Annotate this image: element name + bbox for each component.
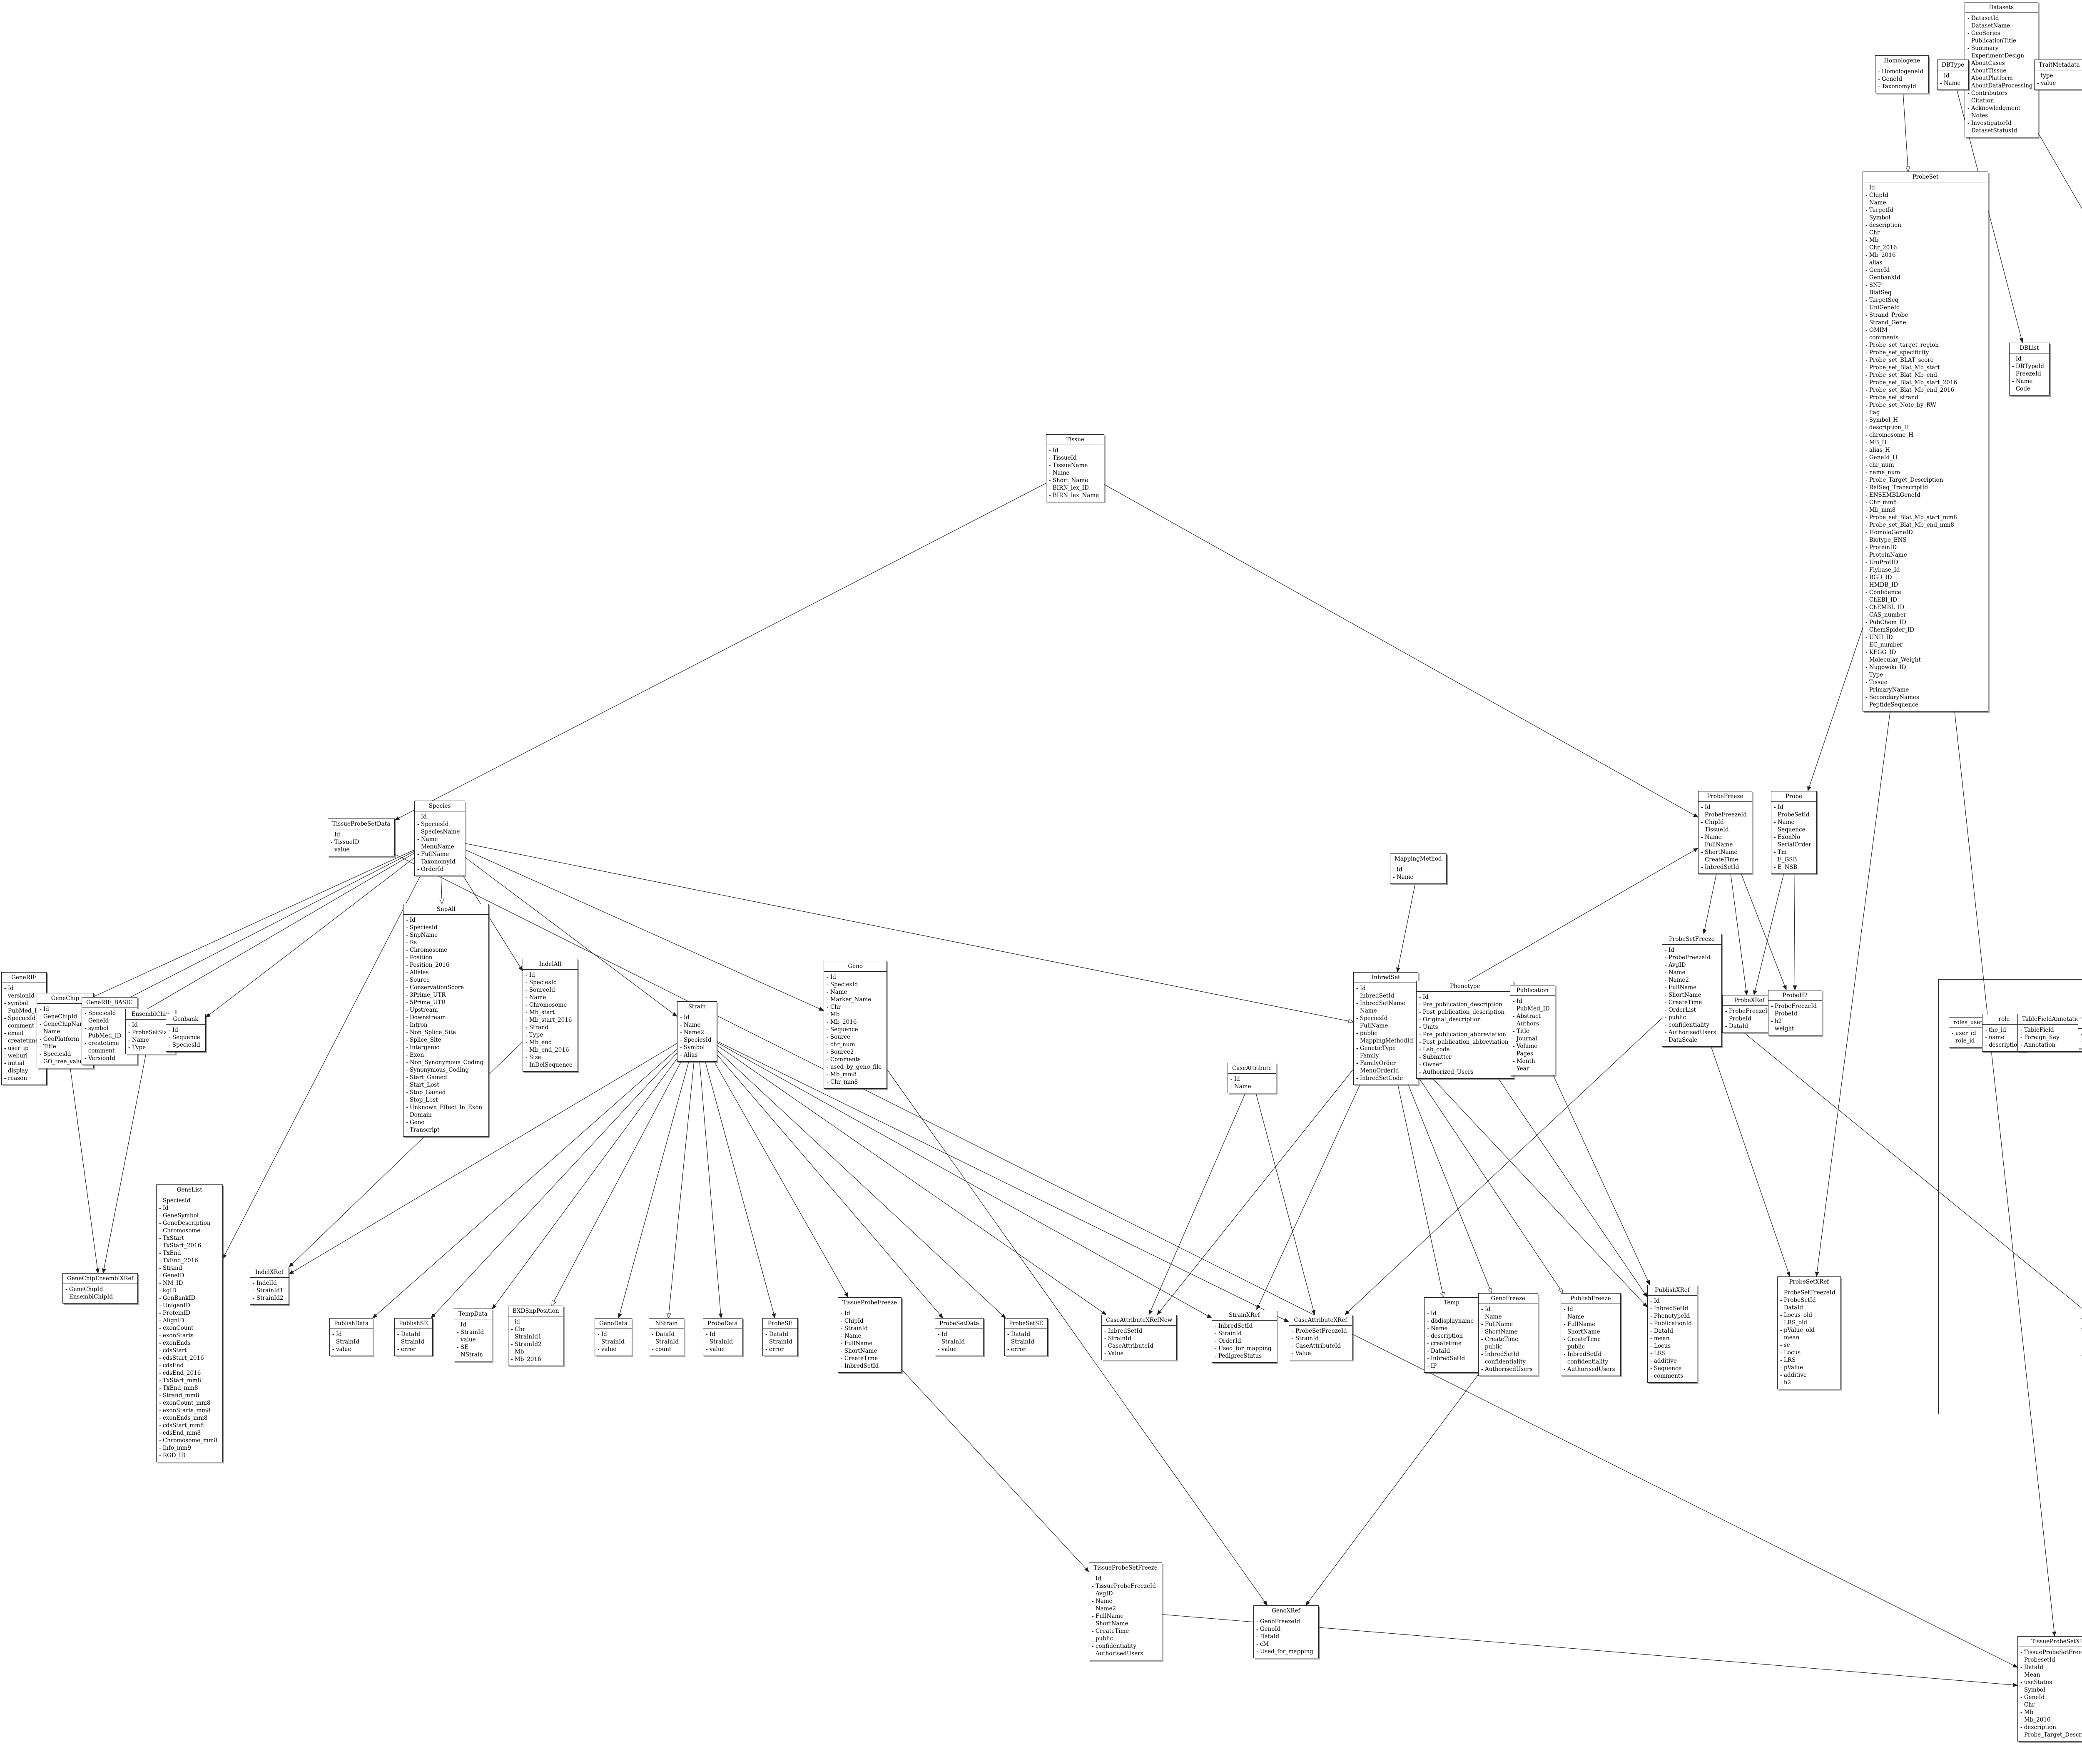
- field-row: - Summary: [1967, 45, 2033, 52]
- field-row: - GeneId: [1878, 75, 1923, 83]
- field-row: - Id: [1393, 866, 1441, 873]
- field-row: - Intergenic: [406, 1044, 483, 1051]
- table-title: CaseAttributeXRefNew: [1102, 1315, 1176, 1326]
- field-row: - Probe_set_Note_by_RW: [1865, 401, 1983, 409]
- table-GenoFreeze: GenoFreeze- Id- Name- FullName- ShortNam…: [1478, 1293, 1538, 1376]
- table-BXDSnpPosition: BXDSnpPosition- id- Chr- StrainId1- Stra…: [508, 1306, 563, 1366]
- table-Geno: Geno- Id- SpeciesId- Name- Marker_Name- …: [824, 961, 887, 1089]
- field-row: - Mb_2016: [2020, 1716, 2082, 1724]
- field-row: - GeneDescription: [159, 1219, 217, 1227]
- field-row: - pValue_old: [1780, 1326, 1835, 1334]
- table-title: CaseAttributeXRef: [1289, 1315, 1352, 1326]
- field-row: - Mb_end: [525, 1039, 573, 1046]
- field-row: - Source: [827, 1033, 882, 1041]
- relationship-edge-Strain-BXDSnpPosition: [552, 1062, 681, 1306]
- field-row: - public: [1665, 1014, 1716, 1021]
- field-row: - weight: [1771, 1025, 1817, 1033]
- field-row: - Start_Gained: [406, 1074, 483, 1081]
- field-row: - AboutDataProcessing: [1967, 82, 2033, 90]
- field-row: - chromosome_H: [1865, 431, 1983, 439]
- field-row: - E_GSB: [1774, 856, 1811, 863]
- field-row: - PeptideSequence: [1865, 701, 1983, 709]
- table-title: Datasets: [1965, 2, 2038, 13]
- field-row: - RGD_ID: [1865, 574, 1983, 581]
- field-list: - Id- TissueProbeFreezeId- AvgID- Name- …: [1089, 1573, 1162, 1660]
- field-row: - Name: [827, 988, 882, 996]
- field-row: - exonEnds: [159, 1339, 217, 1347]
- field-row: - Annotation: [2020, 1041, 2082, 1049]
- field-row: - RefSeq_TranscriptId: [1865, 484, 1983, 491]
- field-row: - VersionId: [85, 1055, 132, 1062]
- field-row: - createtime: [4, 1037, 41, 1045]
- table-title: ProbeSetFreeze: [1662, 934, 1721, 945]
- field-row: - GenbankId: [1865, 274, 1983, 281]
- field-row: - type: [2037, 72, 2079, 80]
- field-row: - createtime: [1427, 1340, 1474, 1347]
- field-row: - TxEnd: [159, 1249, 217, 1257]
- field-row: - DataId: [1256, 1633, 1313, 1640]
- field-row: - UnigenID: [159, 1302, 217, 1309]
- table-title: InbredSet: [1354, 973, 1418, 983]
- field-row: - versionId: [4, 992, 41, 1000]
- field-row: - LRS: [1780, 1356, 1835, 1364]
- field-row: - Name: [1230, 1083, 1271, 1090]
- field-row: - DBTypeId: [2012, 363, 2044, 370]
- relationship-edge-Tissue-TissueProbeSetData: [395, 483, 1046, 820]
- field-row: - symbol: [4, 1000, 41, 1007]
- field-row: - GeneId: [85, 1017, 132, 1025]
- field-row: - Exon: [406, 1051, 483, 1059]
- field-row: - Id: [1774, 804, 1811, 811]
- field-row: - Id: [1865, 184, 1983, 192]
- field-row: - Id: [1356, 985, 1413, 992]
- field-row: - SpeciesId: [680, 1036, 712, 1044]
- field-row: - Id: [169, 1026, 200, 1034]
- field-row: - Post_publication_description: [1419, 1008, 1509, 1016]
- field-row: - Id: [938, 1331, 978, 1338]
- field-list: - Id- StrainId- value: [935, 1329, 983, 1356]
- field-row: - Stop_Lost: [406, 1096, 483, 1104]
- relationship-edge-Strain-ProbeSE: [705, 1062, 775, 1318]
- field-row: - Alias: [680, 1051, 712, 1059]
- field-row: - public: [1564, 1343, 1615, 1351]
- field-row: - TaxonomyId: [1878, 83, 1923, 90]
- field-row: - Mb_end_2016: [525, 1046, 573, 1054]
- field-row: - ProbeSetId: [1774, 811, 1811, 819]
- field-row: - InDelSequence: [525, 1061, 573, 1069]
- field-row: - AboutTissue: [1967, 67, 2033, 75]
- field-row: - Nugowiki_ID: [1865, 664, 1983, 671]
- field-row: - Domain: [406, 1111, 483, 1119]
- field-row: - DatasetId: [1967, 15, 2033, 22]
- field-row: - AboutPlatform: [1967, 75, 2033, 82]
- field-row: - Id: [406, 916, 483, 924]
- field-row: - GeneticType: [1356, 1045, 1413, 1052]
- field-row: - Probe_set_BLAT_score: [1865, 356, 1983, 364]
- field-row: - MB_H: [1865, 439, 1983, 446]
- field-row: - Mb_2016: [827, 1018, 882, 1026]
- field-row: - GeneSymbol: [159, 1212, 217, 1219]
- field-row: - Id: [706, 1331, 737, 1338]
- field-list: - Id- Name: [1228, 1074, 1276, 1093]
- field-row: - Name: [1774, 819, 1811, 826]
- field-row: - Id: [598, 1331, 627, 1338]
- field-list: - IndelId- StrainId1- StrainId2: [250, 1278, 289, 1304]
- field-row: - Name: [1564, 1313, 1615, 1321]
- field-list: - Id- Name: [1938, 70, 1968, 90]
- field-row: - Month: [1513, 1057, 1550, 1065]
- field-row: - Name2: [680, 1029, 712, 1036]
- field-row: - GeneChipId: [65, 1286, 132, 1293]
- field-row: - Sequence: [169, 1034, 200, 1041]
- field-row: - InvestigatorId: [1967, 119, 2033, 127]
- field-row: - TargetSeq: [1865, 296, 1983, 304]
- field-row: - value: [706, 1346, 737, 1353]
- table-title: PublishXRef: [1648, 1285, 1697, 1296]
- field-row: - NM_ID: [159, 1279, 217, 1287]
- field-list: - ProbeFreezeId- ProbeId- h2- weight: [1768, 1001, 1822, 1035]
- table-CaseAttributeXRefNew: CaseAttributeXRefNew- InbredSetId- Strai…: [1101, 1315, 1177, 1360]
- field-row: - value: [598, 1346, 627, 1353]
- field-row: - cdsEnd: [159, 1362, 217, 1369]
- table-ProbeFreeze: ProbeFreeze- Id- ProbeFreezeId- ChipId- …: [1698, 791, 1752, 874]
- field-row: - HomoloGeneID: [1865, 529, 1983, 536]
- field-row: - Used_for_mapping: [1256, 1648, 1313, 1655]
- field-row: - StrainId2: [511, 1341, 558, 1348]
- field-list: - Id- StrainId- value- SE- NStrain: [454, 1319, 492, 1361]
- field-row: - useStatus: [2020, 1679, 2082, 1686]
- field-row: - Name: [40, 1028, 88, 1035]
- field-row: - FullName: [417, 851, 460, 858]
- field-row: - Probe_set_strand: [1865, 394, 1983, 401]
- field-list: - ProbeSetFreezeId- ProbeSetId- DataId- …: [1778, 1287, 1840, 1389]
- table-title: GenoFreeze: [1479, 1294, 1538, 1304]
- field-row: - value: [2037, 80, 2079, 87]
- field-row: - FullName: [1481, 1321, 1533, 1328]
- field-row: - description: [1427, 1332, 1474, 1340]
- field-row: - value: [457, 1336, 487, 1344]
- field-row: - MenuOrderId: [1356, 1067, 1413, 1075]
- table-title: GenoXRef: [1254, 1606, 1318, 1616]
- field-row: - RGD_ID: [159, 1452, 217, 1459]
- field-row: - Id: [680, 1014, 712, 1021]
- field-row: - flag: [1865, 409, 1983, 416]
- field-row: - TargetId: [1865, 207, 1983, 214]
- field-row: - Source2: [827, 1048, 882, 1056]
- field-row: - Rs: [406, 939, 483, 946]
- field-row: - Strand_Gene: [1865, 319, 1983, 326]
- table-InbredSet: InbredSet- Id- InbredSetId- InbredSetNam…: [1353, 972, 1418, 1085]
- table-title: ProbeSet: [1863, 172, 1988, 182]
- field-row: - cdsStart: [159, 1347, 217, 1354]
- field-row: - chr_num: [827, 1041, 882, 1048]
- table-GenoXRef: GenoXRef- GenoFreezeId- GenoId- DataId- …: [1253, 1605, 1319, 1658]
- field-row: - Acknowledgment: [1967, 104, 2033, 112]
- relationship-edge-ProbeSet-ProbeSetXRef: [1816, 712, 1890, 1276]
- field-row: - Splice_Site: [406, 1036, 483, 1044]
- field-row: - SpeciesId: [40, 1050, 88, 1058]
- field-row: - Mb: [2020, 1709, 2082, 1716]
- table-title: TissueProbeSetData: [328, 819, 394, 829]
- relationship-edge-Strain-TempData: [492, 1059, 677, 1309]
- field-row: - comment: [85, 1047, 132, 1055]
- relationship-edge-Species-GeneChip: [94, 851, 414, 1016]
- table-Temp: Temp- Id- dbdisplayname- Name- descripti…: [1424, 1297, 1479, 1373]
- field-row: - ProbeFreezeId: [1725, 1008, 1771, 1015]
- field-row: - initial: [4, 1060, 41, 1067]
- field-row: - DataId: [652, 1331, 679, 1338]
- field-row: - StrainId1: [253, 1287, 284, 1294]
- field-row: - TissueName: [1049, 462, 1099, 469]
- field-row: - Citation: [1967, 97, 2033, 104]
- table-GeneChipEnsemblXRef: GeneChipEnsemblXRef- GeneChipId- Ensembl…: [62, 1273, 138, 1304]
- relationship-edge-GeneChip-GeneChipEnsemblXRef: [70, 1068, 98, 1273]
- field-row: - SpeciesId: [525, 979, 573, 986]
- field-row: - value: [938, 1346, 978, 1353]
- field-row: - EnsemblChipId: [65, 1293, 132, 1301]
- field-row: - DataId: [765, 1331, 792, 1338]
- table-Phenotype: Phenotype- Id- Pre_publication_descripti…: [1416, 981, 1514, 1079]
- field-row: - Family: [1356, 1052, 1413, 1060]
- field-row: - Mb_2016: [511, 1356, 558, 1363]
- field-row: - IndelId: [253, 1279, 284, 1287]
- field-row: - PubChem_ID: [1865, 619, 1983, 626]
- table-TissueProbeSetData: TissueProbeSetData- Id- TissueID- value: [328, 819, 395, 856]
- field-row: - PublicationTitle: [1967, 37, 2033, 45]
- field-row: - Chr: [827, 1003, 882, 1011]
- table-title: GeneChipEnsemblXRef: [63, 1274, 137, 1284]
- table-title: GeneRIF: [2, 973, 46, 983]
- field-row: - InbredSetId: [841, 1362, 896, 1370]
- field-row: - ProbeSetFreezeId: [1780, 1289, 1835, 1296]
- field-list: - Id- ChipId- Name- TargetId- Symbol- de…: [1863, 182, 1988, 711]
- table-title: TissueProbeSetXRef: [2018, 1637, 2082, 1647]
- field-list: - Id- Sequence- SpeciesId: [166, 1025, 205, 1051]
- field-row: - TissueId: [1701, 826, 1747, 833]
- field-row: - GenBankID: [159, 1294, 217, 1302]
- field-row: - exonCount_mm8: [159, 1399, 217, 1407]
- field-row: - Symbol_H: [1865, 416, 1983, 424]
- table-Tissue: Tissue- Id- TissueId- TissueName- Name- …: [1046, 434, 1104, 502]
- field-row: - Type: [1865, 671, 1983, 679]
- field-row: - DataId: [1650, 1327, 1692, 1335]
- field-row: - Downstream: [406, 1014, 483, 1021]
- field-row: - InbredSetId: [1481, 1351, 1533, 1358]
- table-Homologene: Homologene- HomologeneId- GeneId- Taxono…: [1875, 55, 1929, 93]
- field-row: - PhenotypeId: [1650, 1312, 1692, 1320]
- field-row: - Intron: [406, 1021, 483, 1029]
- field-row: - mean: [1650, 1335, 1692, 1342]
- field-row: - Name: [128, 1036, 170, 1044]
- table-DBList: DBList- Id- DBTypeId- FreezeId- Name- Co…: [2009, 343, 2050, 396]
- field-row: - GeneChipId: [40, 1013, 88, 1020]
- field-row: - Chromosome_mm8: [159, 1437, 217, 1444]
- field-row: - comments: [1865, 334, 1983, 341]
- field-row: - Sequence: [827, 1026, 882, 1033]
- field-row: - Probe_set_target_region: [1865, 341, 1983, 349]
- relationship-edge-Species-GeneRIF_BASIC: [137, 853, 414, 1015]
- field-list: - TissueProbeSetFreezeId- ProbesetId- Da…: [2018, 1647, 2082, 1741]
- field-row: - Owner: [1419, 1061, 1509, 1068]
- table-title: TissueProbeSetFreeze: [1089, 1563, 1162, 1573]
- field-row: - Mb: [511, 1348, 558, 1356]
- field-row: - Mb_mm8: [1865, 506, 1983, 514]
- field-row: - HMDB_ID: [1865, 581, 1983, 589]
- field-row: - cM: [1256, 1640, 1313, 1648]
- field-row: - FreezeId: [2012, 370, 2044, 378]
- field-row: - Name: [680, 1021, 712, 1029]
- field-row: - PrimaryName: [1865, 686, 1983, 694]
- field-row: - GO_tree_value: [40, 1058, 88, 1065]
- relationship-edge-Strain-NStrain: [668, 1062, 694, 1318]
- field-row: - error: [397, 1346, 427, 1353]
- field-row: - StrainId: [1292, 1335, 1347, 1342]
- field-row: - StrainId: [1007, 1338, 1042, 1346]
- field-row: - SpeciesId: [159, 1197, 217, 1204]
- field-row: - Probe_set_Blat_Mb_start: [1865, 364, 1983, 371]
- field-row: - E_NSB: [1774, 863, 1811, 871]
- field-row: - AuthorisedUsers: [1481, 1366, 1533, 1373]
- field-row: - FamilyOrder: [1356, 1060, 1413, 1067]
- field-row: - h2: [1780, 1379, 1835, 1386]
- field-row: - ProbesetId: [2020, 1656, 2082, 1664]
- field-row: - 3Prime_UTR: [406, 991, 483, 999]
- table-title: TempData: [454, 1309, 492, 1319]
- field-row: - Biotype_ENS: [1865, 536, 1983, 544]
- table-TraitMetadata: TraitMetadata- type- value: [2034, 60, 2082, 90]
- field-row: - AuthorisedUsers: [1564, 1366, 1615, 1373]
- field-row: - Id: [457, 1321, 487, 1329]
- field-row: - UniProtID: [1865, 559, 1983, 566]
- field-row: - DataId: [1725, 1023, 1771, 1030]
- field-row: - BlatSeq: [1865, 289, 1983, 296]
- field-row: - Stop_Gained: [406, 1089, 483, 1096]
- field-row: - exonStarts_mm8: [159, 1407, 217, 1414]
- field-row: - Name2: [1665, 976, 1716, 984]
- field-row: - SpeciesId: [1356, 1015, 1413, 1022]
- field-row: - exonStarts: [159, 1332, 217, 1339]
- field-row: - Comments: [827, 1056, 882, 1063]
- field-row: - CAS_number: [1865, 611, 1983, 619]
- field-row: - exonEnds_mm8: [159, 1414, 217, 1422]
- field-row: - createtime: [85, 1040, 132, 1047]
- table-title: Species: [415, 801, 465, 811]
- field-list: - Id- StrainId- value: [595, 1329, 632, 1356]
- field-row: - InbredSetId: [1564, 1351, 1615, 1358]
- field-row: - GeneChipName: [40, 1020, 88, 1028]
- relationship-edge-Species-GeneList: [223, 876, 420, 1259]
- field-row: - Name: [1049, 469, 1099, 477]
- field-row: - Chromosome: [406, 946, 483, 954]
- field-row: - Locus: [1650, 1342, 1692, 1350]
- field-row: - Id: [1230, 1075, 1271, 1083]
- field-row: - SnpName: [406, 931, 483, 939]
- field-list: - HomologeneId- GeneId- TaxonomyId: [1875, 66, 1928, 93]
- field-row: - Pre_publication_abbreviation: [1419, 1031, 1509, 1038]
- field-row: - Mb_start_2016: [525, 1016, 573, 1024]
- field-row: - ProbeFreezeId: [1701, 811, 1747, 819]
- field-row: - ExonNo: [1774, 833, 1811, 841]
- field-row: - StrainId2: [253, 1294, 284, 1302]
- field-row: - Tissue: [1865, 679, 1983, 686]
- field-list: - Id- InbredSetId- InbredSetName- Name- …: [1354, 983, 1418, 1085]
- field-row: - Probe_set_Blat_Mb_start_2016: [1865, 379, 1983, 386]
- field-row: - ShortName: [1092, 1620, 1157, 1627]
- field-row: - Name2: [1092, 1605, 1157, 1612]
- relationship-edge-MappingMethod-InbredSet: [1397, 884, 1415, 972]
- table-PublishSE: PublishSE- DataId- StrainId- error: [394, 1318, 433, 1356]
- field-row: - Chromosome: [525, 1001, 573, 1009]
- table-title: NStrain: [649, 1319, 684, 1329]
- field-row: - CaseAttributeId: [1292, 1342, 1347, 1350]
- field-list: - Id- PubMed_ID- Abstract- Authors- Titl…: [1510, 996, 1555, 1075]
- relationship-edge-TissueProbeSetData-TissueProbeSetXRef: [395, 854, 2017, 1667]
- field-row: - ChEMBL_ID: [1865, 604, 1983, 611]
- field-row: - Chr_mm8: [1865, 499, 1983, 506]
- relationship-edge-InbredSet-Temp: [1398, 1085, 1444, 1297]
- field-row: - Code: [2012, 385, 2044, 393]
- table-Strain: Strain- Id- Name- Name2- SpeciesId- Symb…: [677, 1001, 717, 1062]
- field-row: - AboutCases: [1967, 60, 2033, 67]
- field-row: - EC_number: [1865, 641, 1983, 649]
- field-row: - Size: [525, 1054, 573, 1061]
- field-row: - Flybase_Id: [1865, 566, 1983, 574]
- field-row: - ExperimentDesign: [1967, 52, 2033, 60]
- table-title: TraitMetadata: [2035, 60, 2082, 70]
- table-title: Homologene: [1875, 56, 1928, 66]
- field-row: - Position_2016: [406, 961, 483, 969]
- field-row: - Probe_Target_Description: [1865, 476, 1983, 484]
- field-row: - Id: [332, 1331, 368, 1338]
- field-row: - Id: [1419, 993, 1509, 1001]
- field-row: - InbredSetId: [1650, 1305, 1692, 1312]
- table-title: ProbeSE: [763, 1319, 797, 1329]
- field-row: - SE: [457, 1344, 487, 1351]
- field-list: - Id- SpeciesId- Name- Marker_Name- Chr-…: [824, 972, 887, 1088]
- field-row: - TissueId: [1049, 454, 1099, 462]
- field-row: - IP: [1427, 1362, 1474, 1370]
- field-row: - kgID: [159, 1287, 217, 1294]
- field-row: - PubMed_ID: [1513, 1005, 1550, 1013]
- field-row: - StrainId: [938, 1338, 978, 1346]
- field-row: - Pages: [1513, 1050, 1550, 1057]
- relationship-edge-Species-GeneRIF: [47, 850, 414, 1018]
- field-row: - mean: [1780, 1334, 1835, 1341]
- table-Probe: Probe- Id- ProbeSetId- Name- Sequence- E…: [1771, 791, 1817, 874]
- table-title: ProbeSetSE: [1005, 1319, 1047, 1329]
- field-row: - AvgID: [1092, 1590, 1157, 1597]
- field-row: - ENSEMBLGeneId: [1865, 491, 1983, 499]
- field-row: - StrainId: [332, 1338, 368, 1346]
- field-row: - cdsStart_2016: [159, 1354, 217, 1362]
- field-row: - SecondaryNames: [1865, 694, 1983, 701]
- field-row: - Year: [1513, 1065, 1550, 1072]
- field-row: - Id: [417, 813, 460, 821]
- field-row: - Mb_start: [525, 1009, 573, 1016]
- field-row: - description_H: [1865, 424, 1983, 431]
- field-row: - AuthorisedUsers: [1665, 1029, 1716, 1036]
- table-title: PublishSE: [395, 1319, 432, 1329]
- field-row: - InbredSetName: [1356, 1000, 1413, 1007]
- table-TableComments: TableComments- TableName- Comment: [2078, 1018, 2082, 1048]
- relationship-edge-Strain-ProbeData: [700, 1062, 721, 1318]
- relationship-edge-Strain-CaseAttributeXRef: [717, 1041, 1289, 1322]
- relationship-edge-Species-Geno: [465, 850, 824, 1010]
- field-row: - CreateTime: [1665, 999, 1716, 1006]
- field-row: - error: [1007, 1346, 1042, 1353]
- field-row: - user_id: [1952, 1030, 1985, 1037]
- field-row: - Probe_set_Blat_Mb_start_mm8: [1865, 514, 1983, 521]
